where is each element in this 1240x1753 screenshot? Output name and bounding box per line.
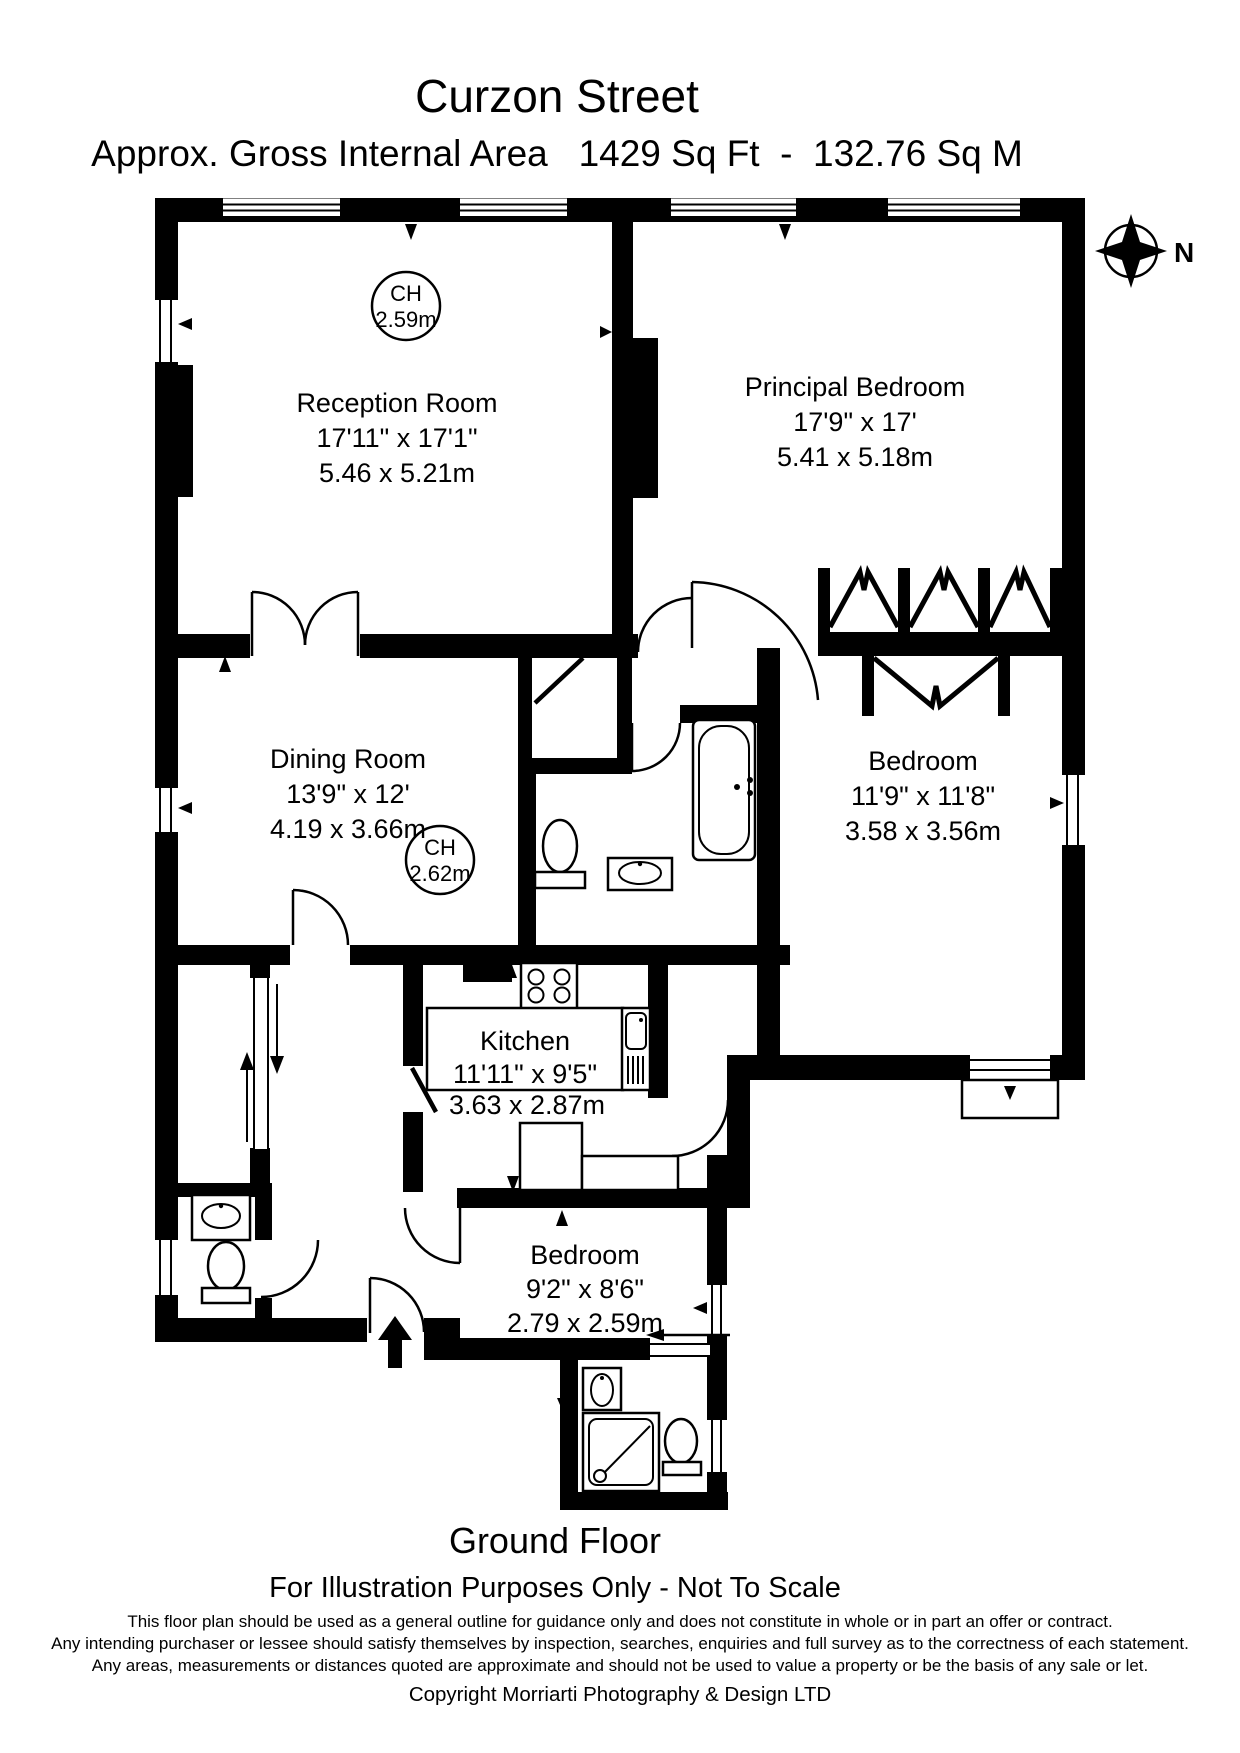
marker-reception-left	[178, 318, 192, 330]
ceiling-height-reception: CH 2.59m	[372, 272, 440, 340]
toilet-wc	[202, 1242, 250, 1303]
wardrobe-principal-3	[990, 572, 1050, 627]
north-compass-icon	[1095, 214, 1167, 288]
toilet-ensuite	[663, 1419, 701, 1475]
door-principal-bedroom	[638, 598, 692, 652]
toilet-bathroom	[535, 820, 585, 888]
room-label-principal-bedroom: Principal Bedroom 17'9" x 17' 5.41 x 5.1…	[745, 372, 966, 472]
marker-dining-left	[178, 802, 192, 814]
door-wc	[261, 1240, 318, 1297]
floorplan-canvas: Curzon Street Approx. Gross Internal Are…	[0, 0, 1240, 1753]
kitchen-unit	[520, 1123, 582, 1190]
kitchen-counter-2	[582, 1156, 678, 1190]
wardrobe-principal-2	[910, 572, 978, 627]
room-label-bedroom3: Bedroom 9'2" x 8'6" 2.79 x 2.59m	[507, 1240, 663, 1338]
room-name: Dining Room	[270, 744, 426, 774]
window-bedroom3-right	[712, 1285, 721, 1335]
room-metric: 5.41 x 5.18m	[777, 442, 933, 472]
window-top-3	[671, 199, 796, 217]
disclaimer-line-3: Any areas, measurements or distances quo…	[92, 1656, 1149, 1675]
ch-label: CH	[424, 835, 456, 860]
sink-ensuite	[583, 1368, 621, 1410]
marker-principal-top	[779, 224, 791, 240]
north-label: N	[1174, 237, 1194, 268]
room-label-dining: Dining Room 13'9" x 12' 4.19 x 3.66m	[270, 744, 426, 844]
window-wc-left	[155, 1240, 178, 1295]
window-ensuite-right	[712, 1420, 721, 1472]
sliding-door-corridor	[240, 977, 284, 1150]
sink-wc	[192, 1195, 250, 1240]
marker-divider-west	[600, 326, 612, 338]
room-metric: 3.58 x 3.56m	[845, 816, 1001, 846]
door-dining-hall	[293, 890, 348, 945]
room-name: Bedroom	[868, 746, 978, 776]
door-closet	[535, 658, 583, 703]
page-title: Curzon Street	[415, 70, 699, 122]
copyright: Copyright Morriarti Photography & Design…	[409, 1683, 831, 1706]
room-name: Principal Bedroom	[745, 372, 966, 402]
marker-bedroom3-right	[693, 1302, 707, 1314]
room-metric: 5.46 x 5.21m	[319, 458, 475, 488]
ch-label: CH	[390, 281, 422, 306]
sink-bathroom	[608, 858, 672, 890]
room-name: Bedroom	[530, 1240, 640, 1270]
double-door-reception-dining	[252, 592, 358, 656]
window-reception-left	[155, 300, 178, 362]
door-passage	[672, 1100, 728, 1156]
room-imperial: 17'9" x 17'	[793, 407, 916, 437]
ch-value: 2.62m	[409, 861, 470, 886]
hob	[521, 963, 577, 1009]
disclaimer-line-2: Any intending purchaser or lessee should…	[51, 1634, 1189, 1653]
entrance-arrow-icon	[378, 1316, 412, 1368]
window-top-2	[460, 199, 567, 217]
bathtub	[693, 720, 755, 860]
room-imperial: 9'2" x 8'6"	[526, 1274, 644, 1304]
wardrobe-principal-1	[830, 572, 898, 627]
window-top-4	[888, 199, 1020, 217]
marker-bedroom3-top	[556, 1210, 568, 1226]
marker-dining-top	[219, 656, 231, 672]
window-bedroom2-right	[1062, 775, 1085, 845]
floorplan-page: Curzon Street Approx. Gross Internal Are…	[0, 0, 1240, 1753]
room-metric: 2.79 x 2.59m	[507, 1308, 663, 1338]
room-metric: 3.63 x 2.87m	[449, 1090, 605, 1120]
window-bedroom2-bottom	[970, 1060, 1050, 1070]
room-name: Kitchen	[480, 1026, 570, 1056]
door-bedroom2	[692, 582, 818, 700]
floor-label: Ground Floor	[449, 1520, 661, 1561]
window-dining-left	[155, 788, 178, 832]
door-bathroom	[632, 723, 680, 771]
window-top-1	[223, 199, 340, 217]
door-bedroom3	[405, 1208, 460, 1263]
room-label-reception: Reception Room 17'11" x 17'1" 5.46 x 5.2…	[296, 388, 497, 488]
disclaimer-line-1: This floor plan should be used as a gene…	[127, 1612, 1112, 1631]
wardrobe-bedroom2	[874, 658, 998, 706]
room-imperial: 11'11" x 9'5"	[453, 1059, 597, 1089]
kitchen-sink	[622, 1008, 650, 1090]
scale-note: For Illustration Purposes Only - Not To …	[269, 1572, 841, 1604]
ch-value: 2.59m	[375, 307, 436, 332]
room-imperial: 11'9" x 11'8"	[851, 781, 995, 811]
room-label-bedroom2: Bedroom 11'9" x 11'8" 3.58 x 3.56m	[845, 746, 1001, 846]
room-name: Reception Room	[296, 388, 497, 418]
marker-reception-top	[405, 224, 417, 240]
shower-ensuite	[583, 1413, 659, 1491]
room-imperial: 17'11" x 17'1"	[316, 423, 477, 453]
marker-bedroom2-right	[1050, 797, 1064, 809]
room-metric: 4.19 x 3.66m	[270, 814, 426, 844]
page-subtitle: Approx. Gross Internal Area 1429 Sq Ft -…	[91, 133, 1023, 174]
room-imperial: 13'9" x 12'	[286, 779, 409, 809]
